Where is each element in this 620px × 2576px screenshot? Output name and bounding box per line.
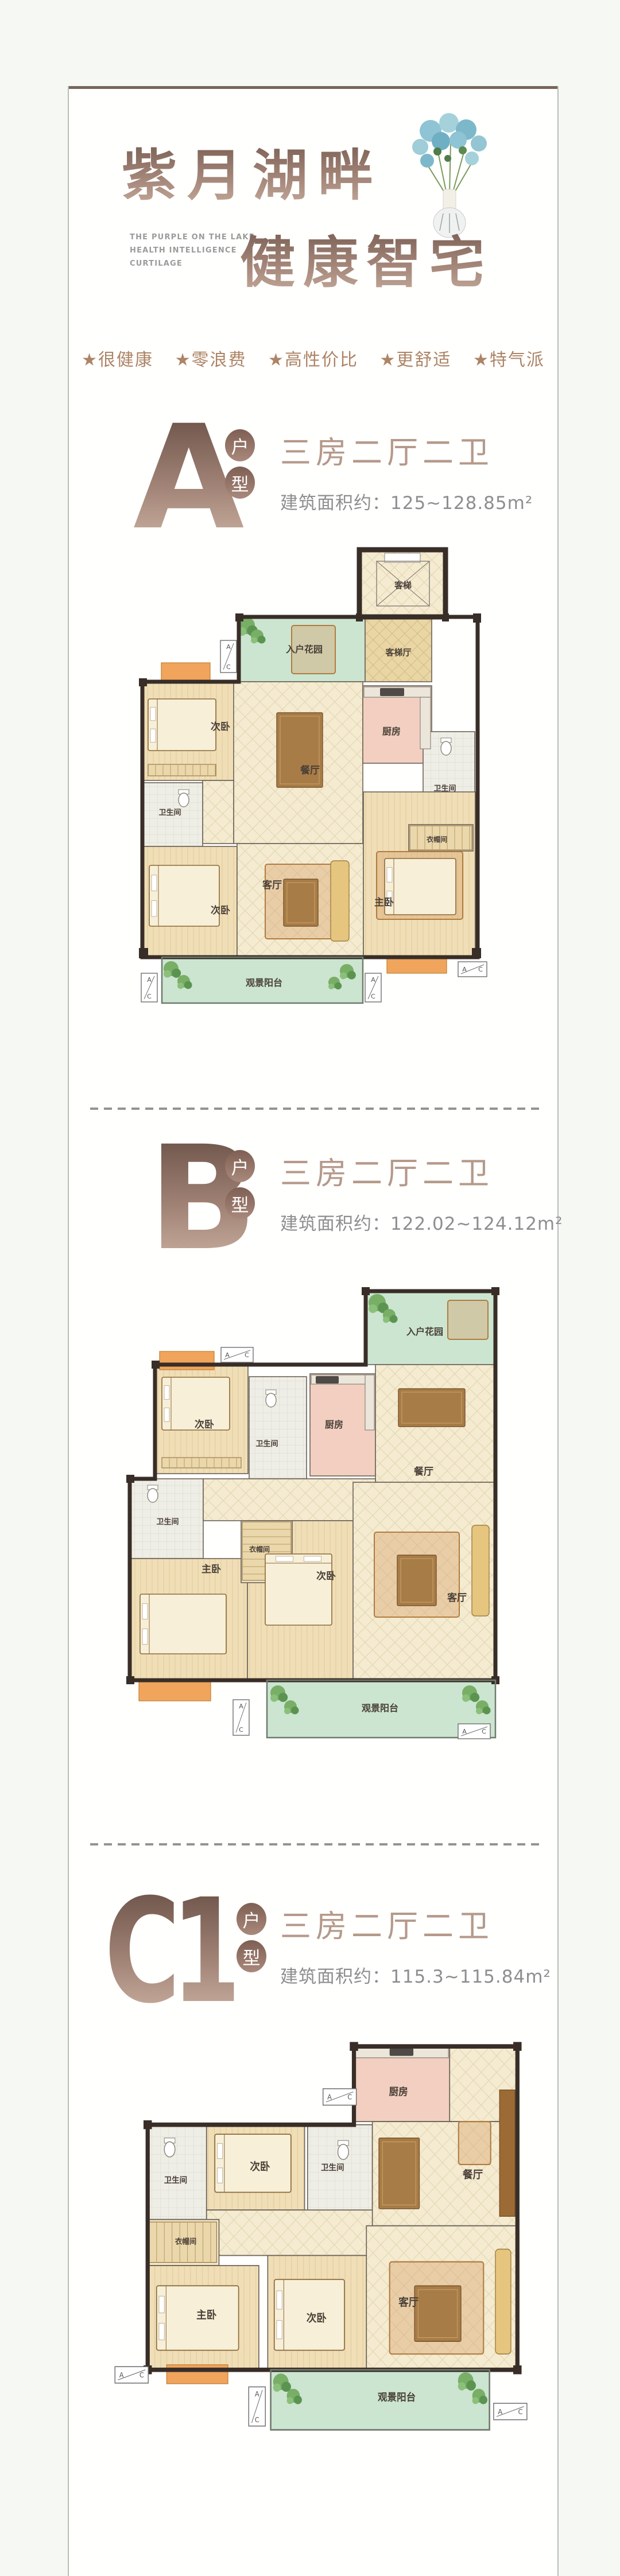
plan-type-badges: 户 型 bbox=[237, 1903, 266, 1972]
room bbox=[203, 1479, 375, 1521]
area-value: 115.3~115.84 bbox=[390, 1967, 525, 1987]
plan-title: 三房二厅二卫 bbox=[280, 427, 533, 472]
bed bbox=[140, 1594, 226, 1654]
room-label: 客厅 bbox=[398, 2296, 418, 2309]
room-label: 餐厅 bbox=[463, 2169, 483, 2182]
svg-text:A: A bbox=[327, 2093, 332, 2101]
room-label: 观景阳台 bbox=[246, 977, 282, 988]
room-label: 入户花园 bbox=[406, 1326, 443, 1337]
svg-text:C: C bbox=[147, 993, 152, 1000]
svg-text:C: C bbox=[139, 2371, 144, 2379]
room bbox=[249, 1377, 307, 1479]
svg-text:C: C bbox=[518, 2407, 522, 2415]
area-label: 建筑面积约： bbox=[280, 1214, 390, 1234]
floorplan-a: ACACACAC客梯入户花园客梯厅次卧餐厅厨房卫生间卫生间次卧客厅主卧衣帽间观景… bbox=[133, 545, 489, 1007]
area-label: 建筑面积约： bbox=[280, 493, 390, 514]
plan-area: 建筑面积约：125~128.85m² bbox=[280, 488, 533, 514]
room-label: 客梯厅 bbox=[385, 647, 411, 658]
room-label: 卫生间 bbox=[164, 2175, 187, 2185]
svg-text:C: C bbox=[239, 1726, 243, 1734]
sofa bbox=[331, 861, 349, 941]
room-label: 卫生间 bbox=[156, 1517, 179, 1526]
tagline-item: ★高性价比 bbox=[268, 350, 358, 370]
bed bbox=[148, 699, 216, 751]
plan-titles: 三房二厅二卫 建筑面积约：115.3~115.84m² bbox=[280, 1901, 551, 1988]
tagline-item: ★零浪费 bbox=[175, 350, 247, 370]
plan-type-badges: 户 型 bbox=[225, 429, 255, 499]
room-label: 入户花园 bbox=[286, 644, 323, 655]
floorplan-b: ACACAC入户花园次卧卫生间厨房餐厅卫生间主卧衣帽间次卧客厅观景阳台 bbox=[126, 1284, 511, 1743]
svg-text:A: A bbox=[255, 2390, 259, 2398]
room-label: 厨房 bbox=[325, 1419, 343, 1430]
room-label: 衣帽间 bbox=[175, 2237, 196, 2246]
bed bbox=[149, 865, 219, 926]
badge-xing: 型 bbox=[225, 1187, 255, 1219]
room bbox=[148, 2125, 207, 2220]
cabinet bbox=[499, 2090, 515, 2216]
svg-text:A: A bbox=[225, 1351, 230, 1359]
room-label: 次卧 bbox=[211, 904, 230, 916]
svg-text:A: A bbox=[371, 976, 375, 984]
badge-xing: 型 bbox=[225, 467, 255, 499]
area-value: 122.02~124.12 bbox=[390, 1214, 537, 1234]
room-label: 卫生间 bbox=[433, 784, 456, 793]
room-label: 主卧 bbox=[374, 896, 394, 908]
plan-titles: 三房二厅二卫 建筑面积约：125~128.85m² bbox=[280, 427, 533, 514]
room-label: 厨房 bbox=[389, 2085, 408, 2098]
room-label: 卫生间 bbox=[158, 808, 181, 817]
room-label: 厨房 bbox=[382, 726, 401, 737]
plan-titles: 三房二厅二卫 建筑面积约：122.02~124.12m² bbox=[280, 1148, 563, 1235]
ac-ledge bbox=[160, 1351, 214, 1370]
room-label: 次卧 bbox=[250, 2160, 270, 2173]
svg-text:C: C bbox=[226, 663, 231, 671]
badge-xing: 型 bbox=[237, 1940, 266, 1972]
room-label: 衣帽间 bbox=[249, 1545, 270, 1553]
room-label: 观景阳台 bbox=[362, 1703, 398, 1714]
area-value: 125~128.85 bbox=[390, 493, 507, 514]
ac-ledge bbox=[161, 663, 210, 681]
main-title: 紫月湖畔 bbox=[122, 131, 383, 211]
room-label: 客梯 bbox=[394, 580, 412, 590]
bed bbox=[385, 858, 456, 915]
room bbox=[203, 780, 234, 844]
svg-text:C: C bbox=[255, 2416, 259, 2424]
ac-ledge bbox=[139, 1681, 211, 1701]
svg-text:C: C bbox=[347, 2093, 352, 2101]
table bbox=[284, 879, 318, 926]
plan-area: 建筑面积约：115.3~115.84m² bbox=[280, 1962, 551, 1988]
table bbox=[379, 2138, 419, 2209]
kitchen-counter bbox=[365, 1375, 374, 1430]
english-subtitle: THE PURPLE ON THE LAKE HEALTH INTELLIGEN… bbox=[130, 231, 255, 270]
room-label: 客厅 bbox=[262, 879, 282, 891]
svg-text:A: A bbox=[119, 2371, 124, 2379]
plan-type-badges: 户 型 bbox=[225, 1150, 255, 1219]
tagline-item: ★更舒适 bbox=[380, 350, 452, 370]
stove bbox=[316, 1376, 339, 1384]
subtitle-line: CURTILAGE bbox=[130, 257, 255, 270]
floorplan-svg-B: ACACAC入户花园次卧卫生间厨房餐厅卫生间主卧衣帽间次卧客厅观景阳台 bbox=[126, 1284, 511, 1743]
room-label: 衣帽间 bbox=[427, 835, 447, 844]
wardrobe bbox=[148, 764, 216, 776]
plan-title: 三房二厅二卫 bbox=[280, 1901, 551, 1946]
svg-text:A: A bbox=[462, 966, 467, 973]
plan-title: 三房二厅二卫 bbox=[280, 1148, 563, 1193]
svg-text:C: C bbox=[482, 1728, 486, 1735]
svg-text:C: C bbox=[478, 966, 483, 973]
page-background: 紫月湖畔 bbox=[0, 0, 620, 2576]
kitchen-counter bbox=[420, 697, 431, 749]
sofa bbox=[472, 1525, 489, 1616]
rug bbox=[448, 1300, 488, 1339]
room-label: 餐厅 bbox=[414, 1466, 433, 1478]
sofa bbox=[495, 2249, 511, 2354]
room-label: 观景阳台 bbox=[378, 2391, 416, 2404]
plan-area: 建筑面积约：122.02~124.12m² bbox=[280, 1209, 563, 1235]
room-label: 客厅 bbox=[447, 1592, 467, 1604]
svg-text:A: A bbox=[226, 643, 231, 651]
room bbox=[207, 2210, 373, 2255]
tagline-item: ★很健康 bbox=[82, 350, 153, 370]
section-divider bbox=[90, 1843, 545, 1845]
room-label: 次卧 bbox=[211, 721, 230, 733]
room-label: 次卧 bbox=[307, 2312, 327, 2325]
floorplan-c1: ACACACAC厨房卫生间次卧卫生间餐厅衣帽间主卧次卧客厅观景阳台 bbox=[110, 2039, 529, 2447]
svg-text:A: A bbox=[498, 2407, 502, 2415]
sub-title: 健康智宅 bbox=[240, 218, 493, 298]
area-unit: m² bbox=[525, 1967, 551, 1987]
room-label: 次卧 bbox=[195, 1419, 214, 1431]
room-label: 餐厅 bbox=[300, 764, 320, 776]
room-label: 次卧 bbox=[316, 1570, 336, 1582]
brochure-page: { "palette": { "page_bg": "#f6f8f4", "ca… bbox=[0, 0, 620, 2576]
subtitle-line: HEALTH INTELLIGENCE bbox=[130, 244, 255, 257]
table bbox=[414, 2286, 461, 2341]
room-label: 卫生间 bbox=[321, 2162, 344, 2173]
area-label: 建筑面积约： bbox=[280, 1967, 390, 1987]
rug bbox=[459, 2122, 491, 2165]
badge-hu: 户 bbox=[225, 1150, 255, 1182]
floorplan-svg-C1: ACACACAC厨房卫生间次卧卫生间餐厅衣帽间主卧次卧客厅观景阳台 bbox=[110, 2039, 529, 2447]
stove bbox=[380, 688, 404, 696]
svg-text:C: C bbox=[371, 993, 375, 1000]
svg-text:A: A bbox=[239, 1703, 243, 1710]
svg-text:A: A bbox=[462, 1728, 467, 1735]
badge-hu: 户 bbox=[237, 1903, 266, 1935]
room-label: 卫生间 bbox=[255, 1439, 278, 1448]
table bbox=[397, 1555, 436, 1606]
area-unit: m² bbox=[507, 493, 533, 514]
brochure-card: 紫月湖畔 bbox=[68, 86, 559, 2576]
svg-text:A: A bbox=[147, 976, 152, 984]
svg-text:C: C bbox=[245, 1351, 249, 1359]
tagline-item: ★特气派 bbox=[473, 350, 545, 370]
room-label: 主卧 bbox=[201, 1563, 221, 1575]
tagline-row: ★很健康 ★零浪费 ★高性价比 ★更舒适 ★特气派 bbox=[69, 345, 557, 371]
room-label: 主卧 bbox=[196, 2309, 216, 2322]
badge-hu: 户 bbox=[225, 429, 255, 461]
stove bbox=[390, 2048, 413, 2056]
section-divider bbox=[90, 1108, 545, 1110]
subtitle-line: THE PURPLE ON THE LAKE bbox=[130, 231, 255, 244]
area-unit: m² bbox=[537, 1214, 563, 1234]
bed bbox=[265, 1554, 332, 1625]
plan-letter-c1: C1 bbox=[104, 1889, 234, 2014]
floorplan-svg-A: ACACACAC客梯入户花园客梯厅次卧餐厅厨房卫生间卫生间次卧客厅主卧衣帽间观景… bbox=[133, 545, 489, 1007]
table bbox=[398, 1389, 465, 1427]
